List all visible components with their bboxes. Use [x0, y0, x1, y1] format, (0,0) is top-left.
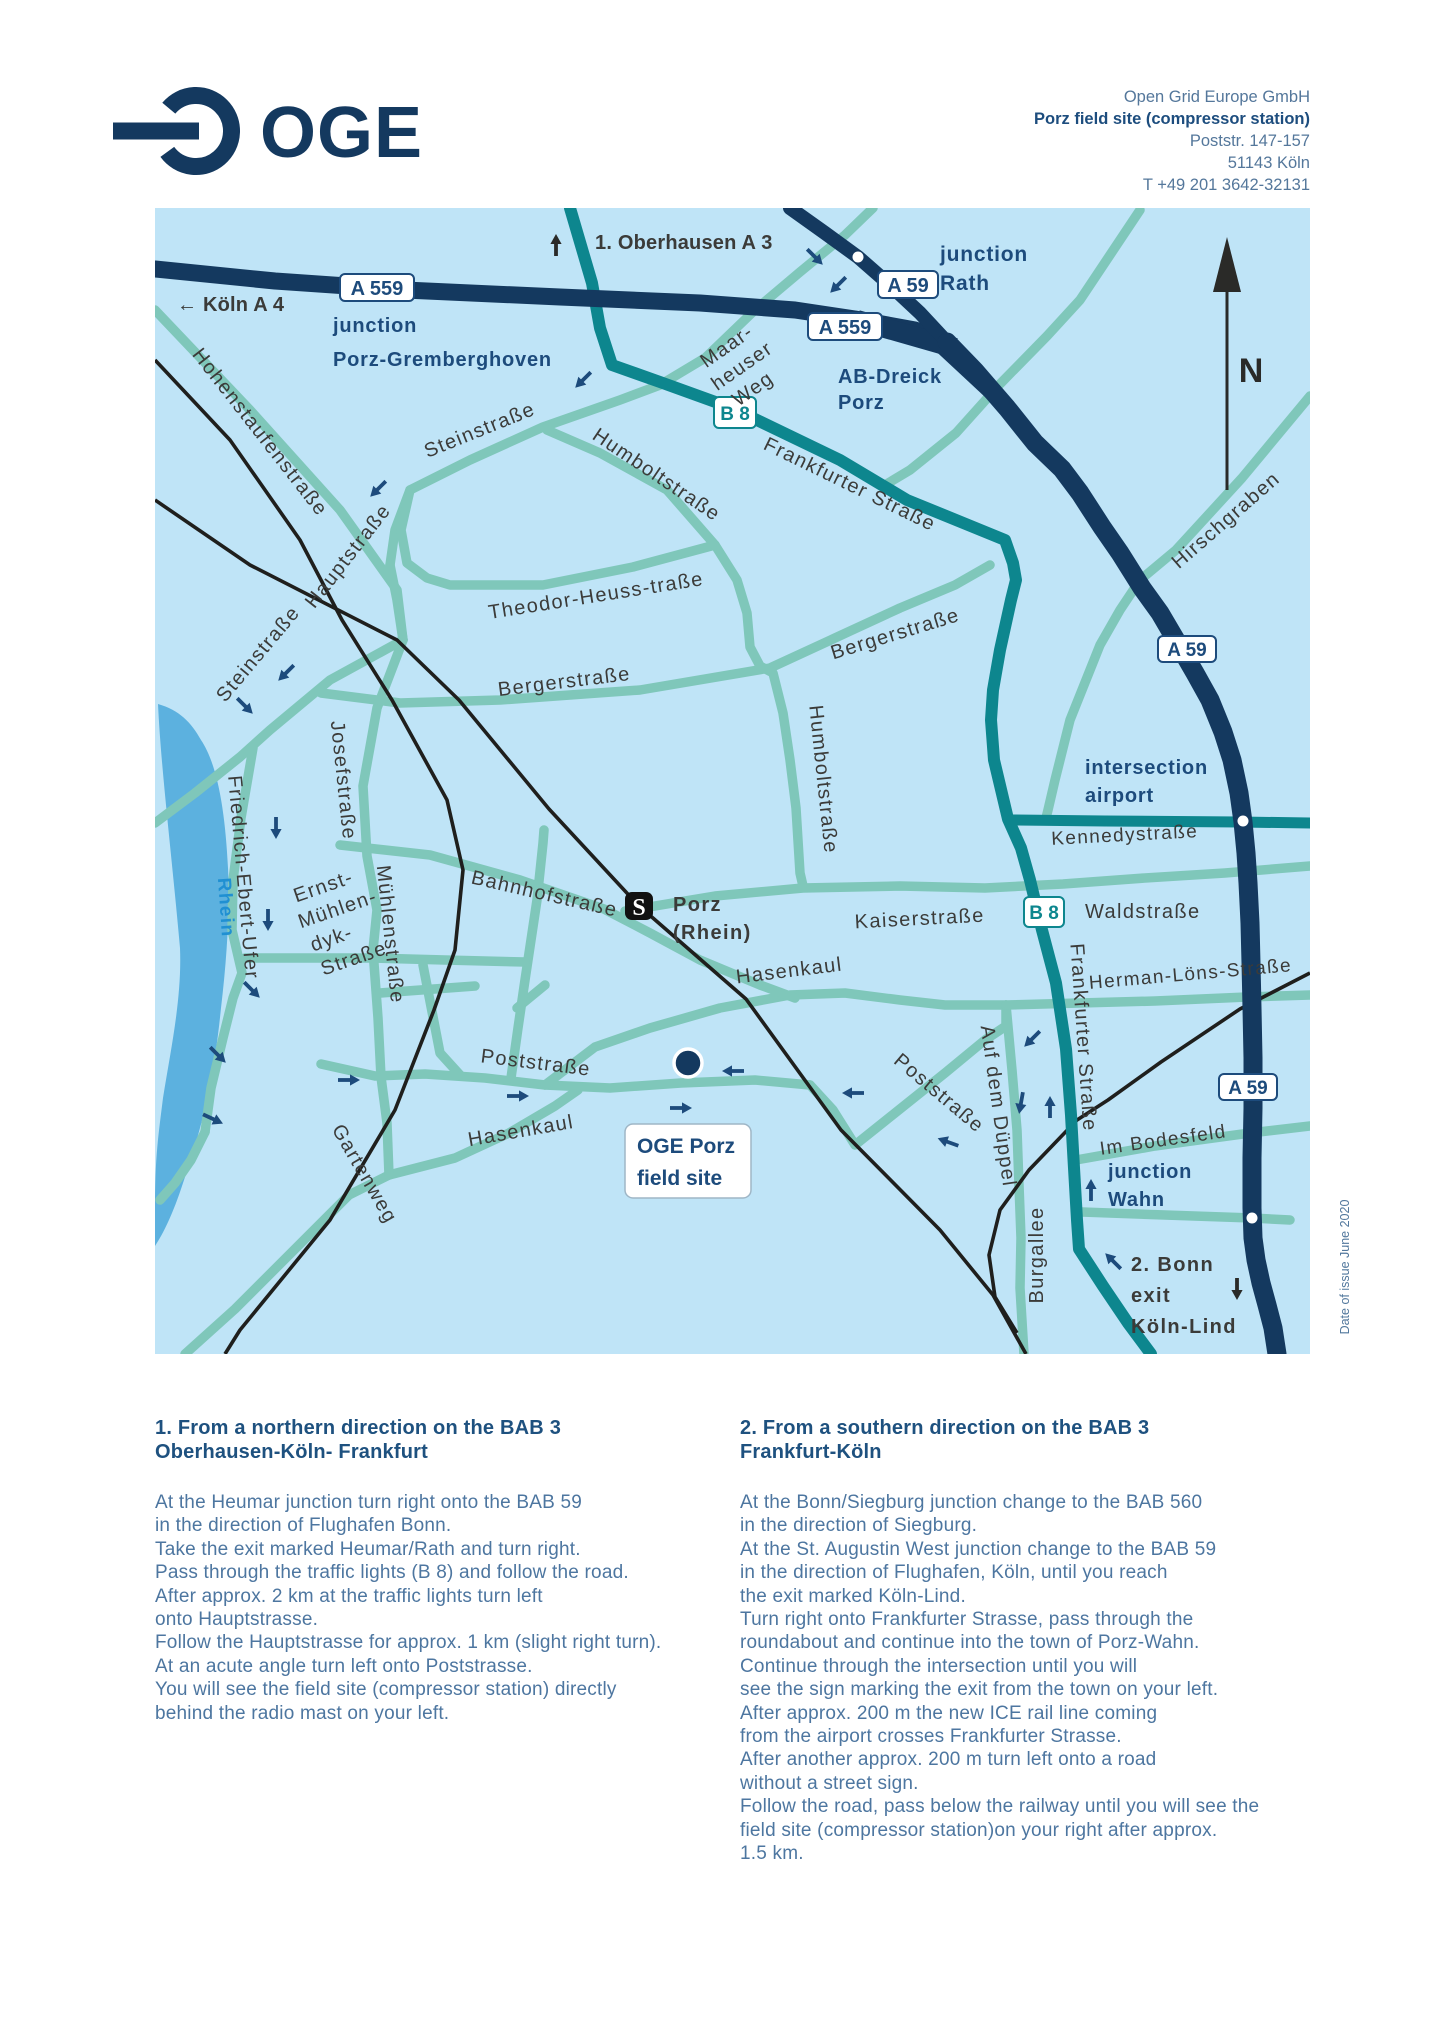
svg-text:Rhein: Rhein	[213, 877, 238, 938]
svg-text:junction: junction	[939, 243, 1028, 266]
svg-text:A 559: A 559	[819, 317, 872, 339]
svg-text:N: N	[1239, 352, 1264, 390]
svg-text:field site: field site	[637, 1167, 722, 1190]
svg-text:Porz: Porz	[838, 392, 885, 414]
svg-text:A 559: A 559	[351, 278, 404, 300]
svg-text:airport: airport	[1085, 785, 1154, 807]
svg-text:Köln-Lind: Köln-Lind	[1131, 1316, 1237, 1338]
svg-text:Waldstraße: Waldstraße	[1085, 901, 1201, 923]
svg-text:Burgallee: Burgallee	[1026, 1206, 1048, 1303]
svg-text:Wahn: Wahn	[1108, 1189, 1165, 1211]
svg-text:Porz-Gremberghoven: Porz-Gremberghoven	[333, 349, 552, 371]
svg-text:A 59: A 59	[1167, 640, 1206, 661]
svg-text:B 8: B 8	[1029, 903, 1059, 924]
svg-text:intersection: intersection	[1085, 757, 1208, 779]
svg-text:OGE: OGE	[260, 93, 423, 173]
svg-text:2. Bonn: 2. Bonn	[1131, 1254, 1214, 1276]
svg-text:1. Oberhausen A 3: 1. Oberhausen A 3	[595, 232, 773, 254]
svg-text:A 59: A 59	[887, 275, 929, 297]
svg-text:junction: junction	[332, 315, 417, 337]
svg-text:AB-Dreick: AB-Dreick	[838, 366, 942, 388]
svg-text:Rath: Rath	[940, 272, 990, 295]
svg-text:junction: junction	[1107, 1161, 1192, 1183]
svg-text:A 59: A 59	[1228, 1078, 1267, 1099]
svg-text:exit: exit	[1131, 1285, 1171, 1307]
svg-text:← Köln A 4: ← Köln A 4	[177, 294, 285, 316]
svg-text:S: S	[632, 895, 645, 921]
svg-text:Porz: Porz	[673, 894, 722, 916]
svg-text:(Rhein): (Rhein)	[673, 922, 752, 944]
svg-text:OGE Porz: OGE Porz	[637, 1135, 735, 1158]
